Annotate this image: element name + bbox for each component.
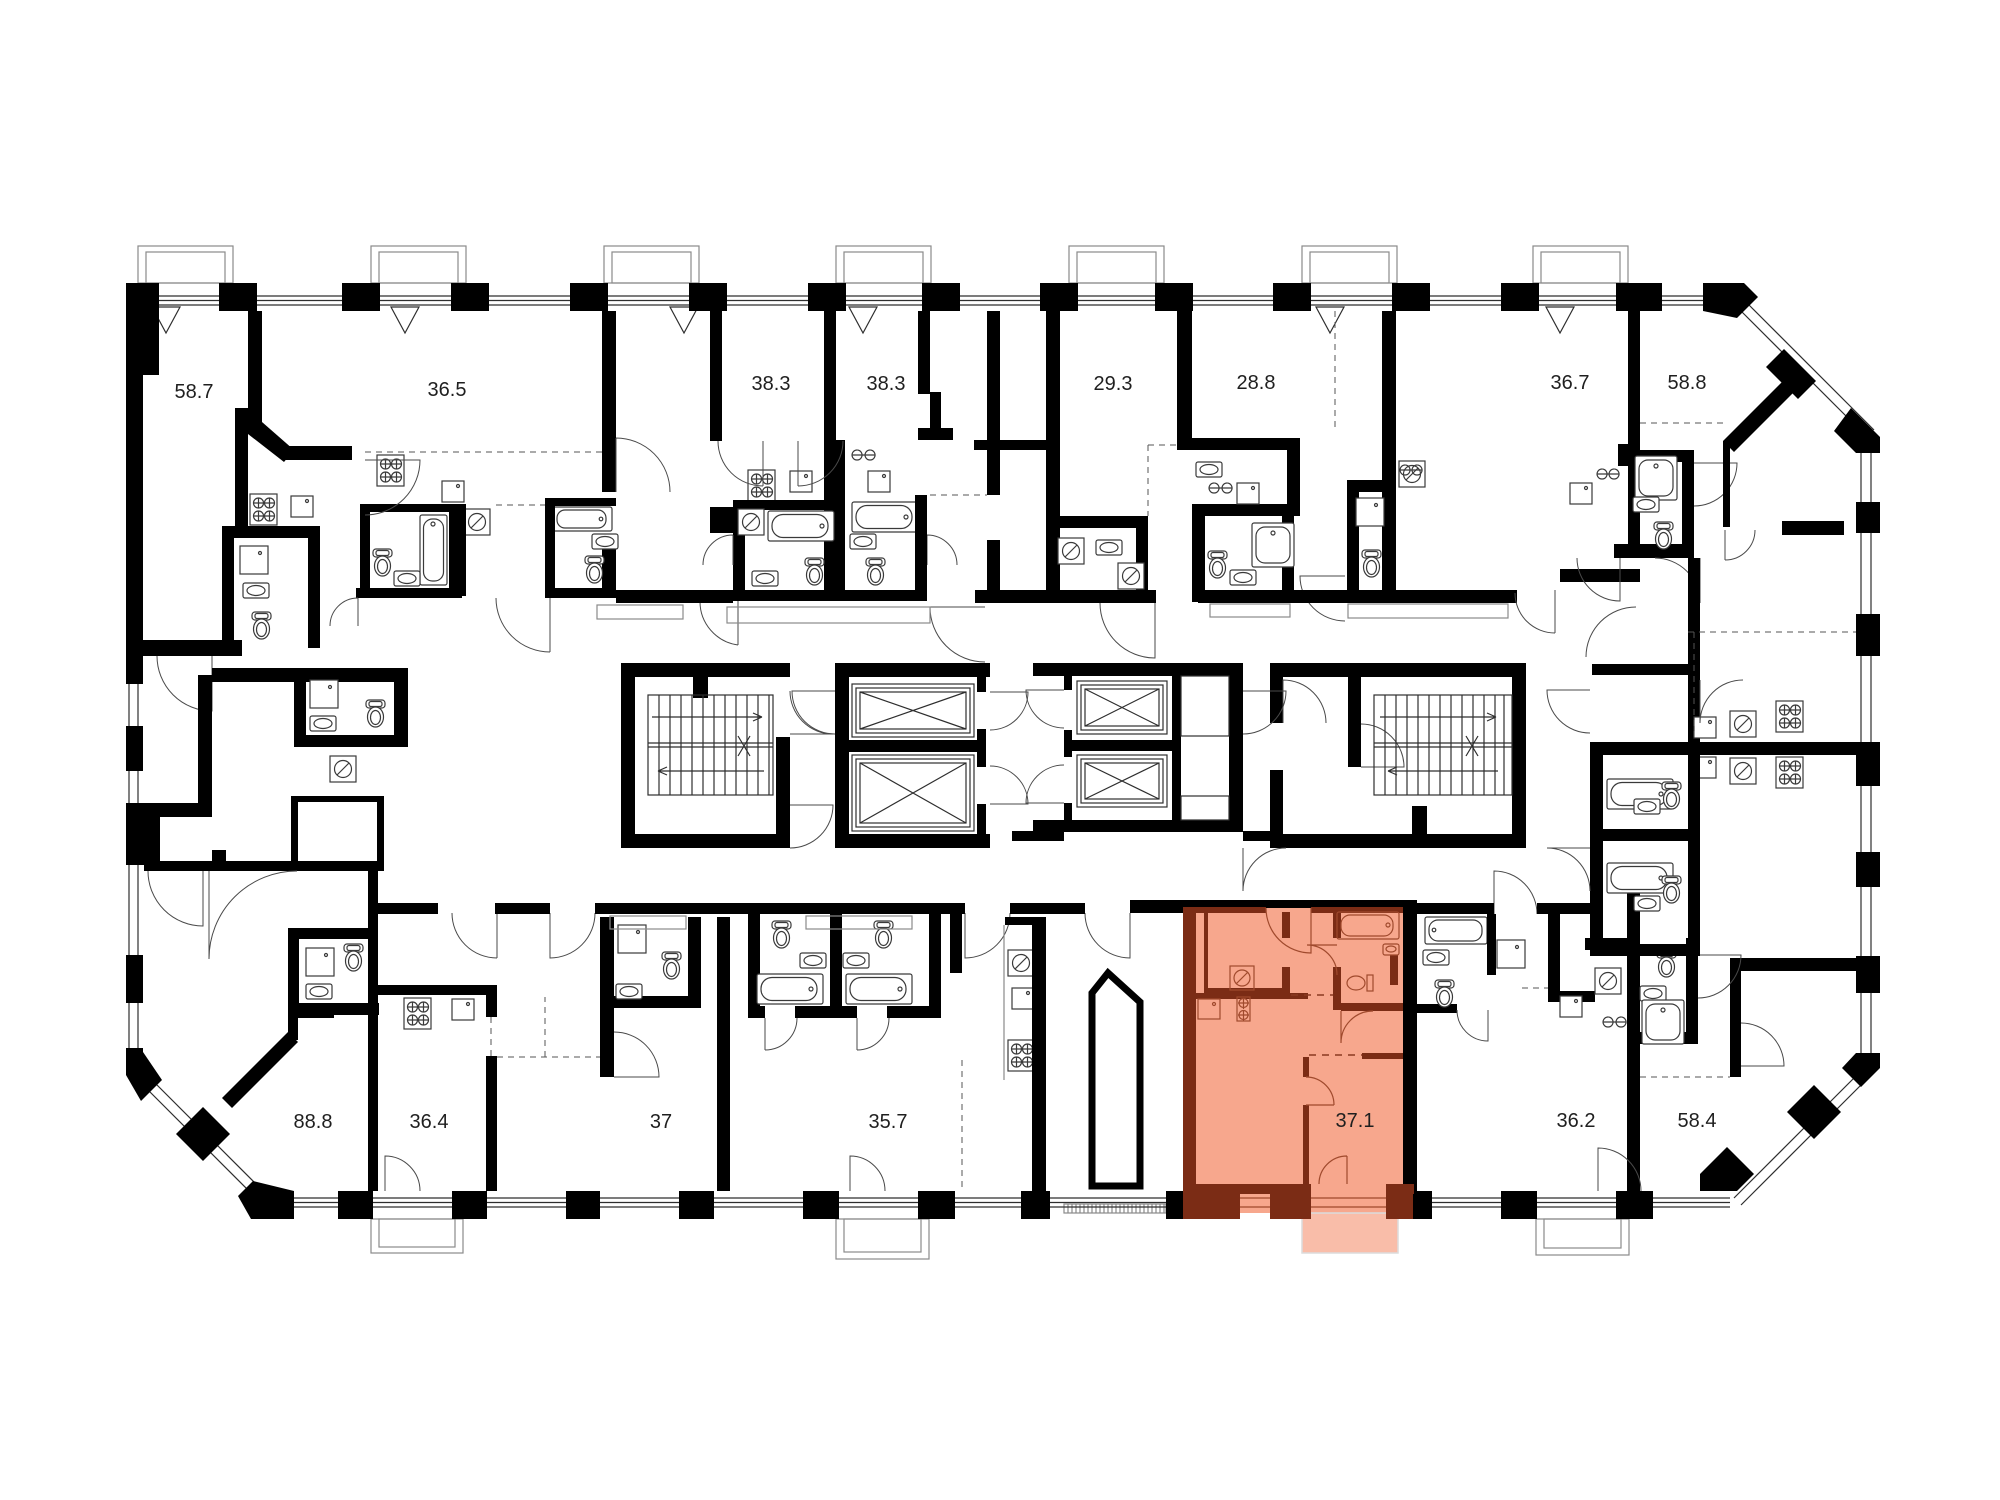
svg-text:35.7: 35.7 <box>869 1111 908 1133</box>
svg-text:88.8: 88.8 <box>294 1111 333 1133</box>
svg-text:29.3: 29.3 <box>1094 373 1133 395</box>
svg-text:36.5: 36.5 <box>428 379 467 401</box>
svg-text:38.3: 38.3 <box>752 373 791 395</box>
svg-text:36.4: 36.4 <box>410 1111 449 1133</box>
svg-text:58.4: 58.4 <box>1678 1110 1717 1132</box>
svg-text:58.7: 58.7 <box>175 381 214 403</box>
svg-text:28.8: 28.8 <box>1237 372 1276 394</box>
svg-text:37: 37 <box>650 1111 672 1133</box>
svg-text:36.7: 36.7 <box>1551 372 1590 394</box>
svg-text:37.1: 37.1 <box>1336 1110 1375 1132</box>
svg-text:38.3: 38.3 <box>867 373 906 395</box>
svg-text:58.8: 58.8 <box>1668 372 1707 394</box>
svg-text:36.2: 36.2 <box>1557 1110 1596 1132</box>
